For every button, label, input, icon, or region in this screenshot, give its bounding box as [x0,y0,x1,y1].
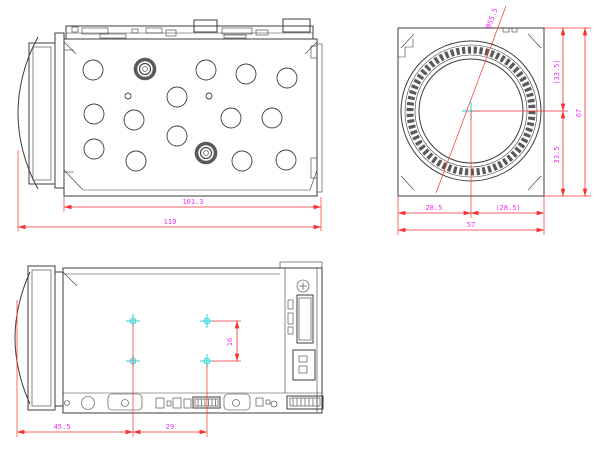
dim-center-to-right: (28.5) [495,204,520,212]
front-view-dimensions: Ø55.5 (33.5) 33.5 67 28.5 (28.5) 57 [398,6,591,235]
dim-overall-width: 57 [467,221,475,229]
lens-barrel-side [15,266,63,410]
screw-head [136,60,155,79]
dim-front-to-hole: 45.5 [54,423,71,431]
mounting-hole-markers [126,314,214,368]
dim-center-to-left: 28.5 [426,204,443,212]
screw-head [197,144,216,163]
pin-connector [193,397,220,408]
cover-perforation-holes [83,60,297,171]
dim-hole-spacing-x: 29 [166,423,174,431]
pin-connector [287,396,323,409]
dim-hole-spacing-y: 16 [226,338,234,346]
lens-barrel-side [18,33,74,189]
dim-body-length: 101.3 [182,198,203,206]
engineering-drawing: 101.3 119 Ø55.5 [0,0,600,451]
dim-center-to-top: (33.5) [553,59,561,84]
top-pcb-rail [66,19,313,39]
bottom-side-view: 45.5 29 16 [15,262,323,437]
drawing-sheet: 101.3 119 Ø55.5 [0,0,600,451]
top-view-dimensions: 101.3 119 [18,150,321,231]
hole-center-marker-icon [200,314,214,328]
camera-body-side [63,262,322,413]
dim-lens-diameter: Ø55.5 [485,7,500,30]
side-connector-panel [285,268,315,393]
dim-overall-height: 67 [575,109,583,117]
front-view: Ø55.5 (33.5) 33.5 67 28.5 (28.5) 57 [398,6,591,235]
bottom-connector-strip [65,394,324,410]
dim-overall-length: 119 [164,218,177,226]
top-side-view: 101.3 119 [18,19,322,231]
dim-center-to-bottom: 33.5 [553,147,561,164]
